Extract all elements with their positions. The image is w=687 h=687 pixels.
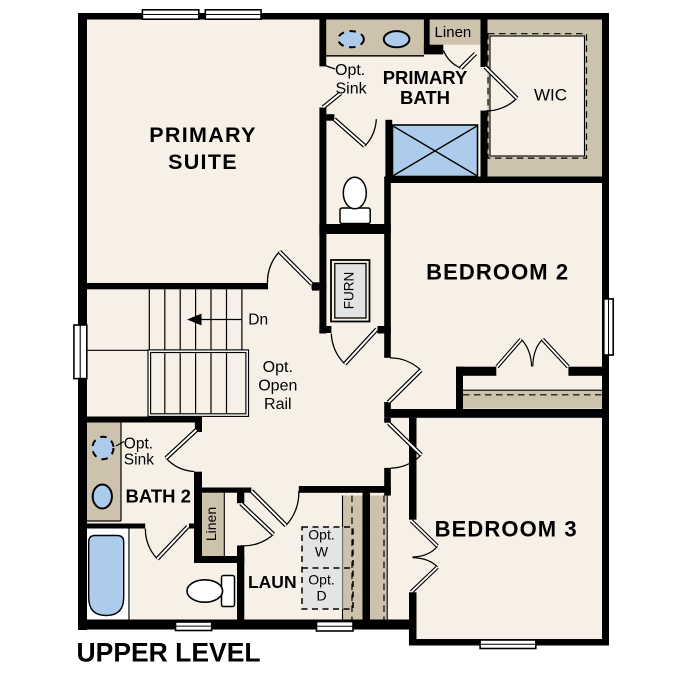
svg-text:Opt.: Opt. (308, 572, 334, 588)
svg-text:LAUN: LAUN (248, 572, 297, 592)
svg-text:Opt.: Opt. (308, 527, 334, 543)
svg-text:PRIMARY: PRIMARY (149, 123, 256, 147)
svg-text:Rail: Rail (264, 396, 292, 413)
svg-text:BEDROOM 2: BEDROOM 2 (426, 260, 569, 285)
svg-text:Sink: Sink (336, 81, 368, 98)
svg-text:SUITE: SUITE (168, 150, 238, 174)
svg-text:W: W (315, 544, 329, 560)
svg-text:Dn: Dn (248, 312, 268, 329)
svg-text:Open: Open (258, 378, 297, 395)
svg-text:FURN: FURN (342, 272, 357, 310)
svg-text:Sink: Sink (124, 451, 154, 468)
svg-text:PRIMARY: PRIMARY (383, 67, 468, 88)
svg-text:Linen: Linen (203, 507, 219, 541)
svg-text:Opt.: Opt. (263, 359, 293, 376)
svg-text:WIC: WIC (534, 86, 567, 105)
svg-text:D: D (316, 588, 326, 604)
svg-text:UPPER LEVEL: UPPER LEVEL (77, 638, 261, 668)
svg-text:Opt.: Opt. (124, 436, 153, 453)
svg-text:Linen: Linen (435, 24, 472, 41)
svg-text:BEDROOM 3: BEDROOM 3 (435, 516, 578, 541)
svg-text:Opt.: Opt. (335, 62, 365, 79)
svg-text:BATH: BATH (400, 87, 450, 108)
svg-text:BATH 2: BATH 2 (125, 486, 190, 507)
